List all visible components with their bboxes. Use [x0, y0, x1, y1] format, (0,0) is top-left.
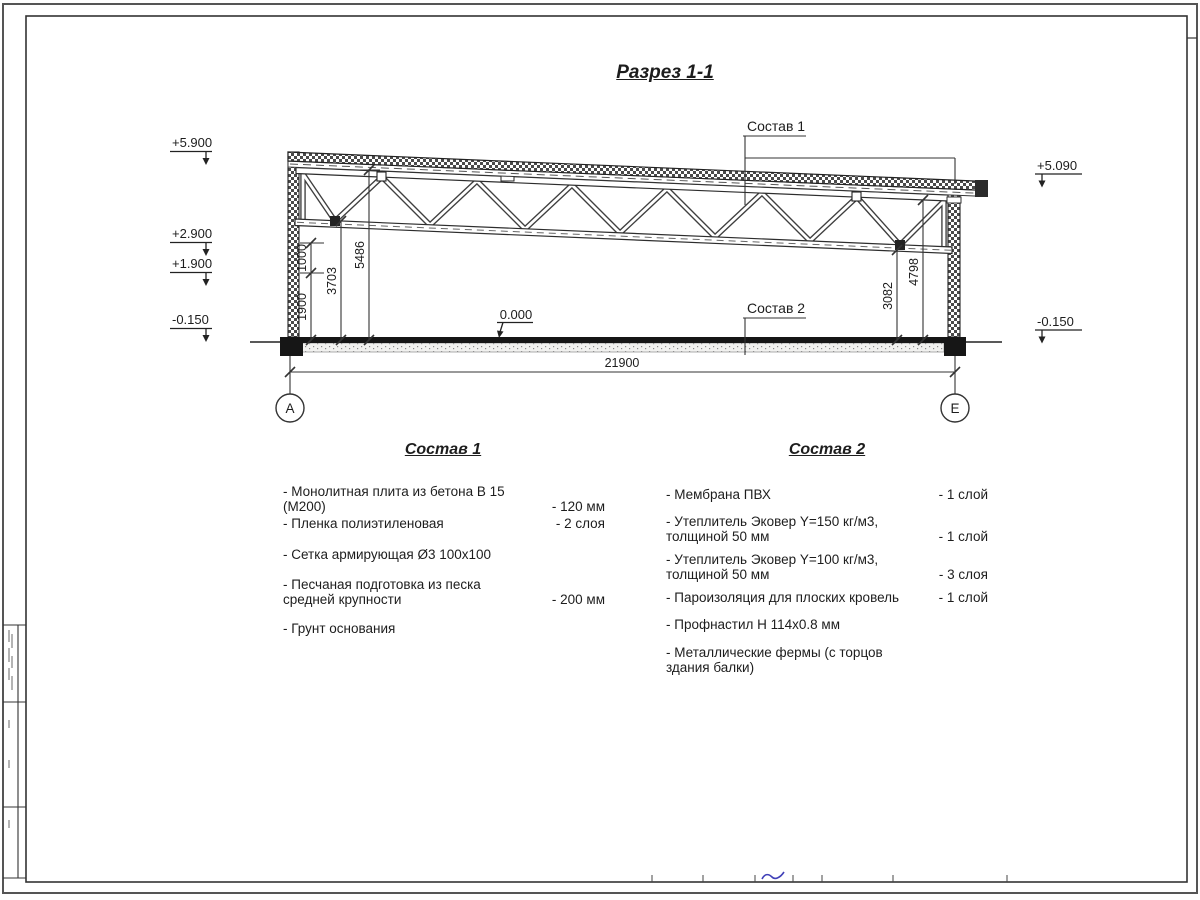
material-text: - Утеплитель Эковер Y=100 кг/м3, толщино…	[666, 552, 878, 582]
elevation-left-mid2: +1.900	[170, 256, 212, 286]
axis-letter-right: Е	[950, 401, 959, 416]
dim-4798: 4798	[907, 258, 921, 286]
composition2-item: - Утеплитель Эковер Y=150 кг/м3, толщино…	[666, 514, 988, 544]
composition1-heading: Состав 1	[283, 441, 603, 459]
material-value: - 1 слой	[931, 487, 988, 502]
left-footing	[280, 337, 303, 356]
material-value: - 200 мм	[544, 592, 605, 607]
roof-edge-cap	[975, 180, 988, 197]
elevation-left-top: +5.900	[170, 135, 212, 165]
elevation-label: +5.900	[172, 135, 212, 150]
material-text: - Монолитная плита из бетона В 15 (М200)	[283, 484, 544, 514]
dim-1900: 1900	[295, 293, 309, 321]
dim-3082: 3082	[881, 282, 895, 310]
right-footing	[944, 337, 966, 356]
elevation-left-mid1: +2.900	[170, 226, 212, 256]
material-value: - 1 слой	[931, 590, 988, 605]
material-text: - Мембрана ПВХ	[666, 487, 771, 502]
material-text: - Грунт основания	[283, 621, 395, 636]
elevation-label: +1.900	[172, 256, 212, 271]
elevation-right-top: +5.090	[1035, 158, 1082, 188]
composition1-item: - Пленка полиэтиленовая - 2 слоя	[283, 516, 605, 531]
elevation-label: +5.090	[1037, 158, 1077, 173]
title-block-ticks	[652, 875, 1007, 882]
material-text: - Профнастил Н 114х0.8 мм	[666, 617, 840, 632]
dim-overall: 21900	[605, 356, 640, 370]
elevation-label: 0.000	[500, 307, 533, 322]
drawing-sheet: +5.900 +2.900 +1.900 -0.150 +5.090 -0.15…	[0, 0, 1200, 900]
material-value: - 2 слоя	[548, 516, 605, 531]
material-value: - 120 мм	[544, 499, 605, 514]
composition2-heading: Состав 2	[666, 441, 988, 459]
elevation-label: -0.150	[172, 312, 209, 327]
composition2-item: - Профнастил Н 114х0.8 мм	[666, 617, 988, 632]
axis-markers: А Е	[276, 394, 969, 422]
elevation-right-bottom: -0.150	[1035, 314, 1082, 344]
dim-3703: 3703	[325, 267, 339, 295]
composition1-item: - Сетка армирующая Ø3 100х100	[283, 547, 605, 562]
overall-dimension: 21900	[285, 356, 960, 394]
elevation-label: -0.150	[1037, 314, 1074, 329]
material-text: - Металлические фермы (с торцов здания б…	[666, 645, 928, 675]
callout-roof-label: Состав 1	[747, 118, 805, 134]
dim-5486: 5486	[353, 241, 367, 269]
composition2-item: - Утеплитель Эковер Y=100 кг/м3, толщино…	[666, 552, 988, 582]
callout-floor-label: Состав 2	[747, 300, 805, 316]
dimension-labels: 1900 1000 3703 5486 3082 4798	[295, 241, 921, 321]
composition2-item: - Металлические фермы (с торцов здания б…	[666, 645, 988, 675]
floor-slab	[288, 337, 960, 343]
elevation-label: +2.900	[172, 226, 212, 241]
composition1-item: - Грунт основания	[283, 621, 605, 636]
composition1-item: - Монолитная плита из бетона В 15 (М200)…	[283, 484, 605, 514]
material-text: - Пленка полиэтиленовая	[283, 516, 444, 531]
material-value: - 1 слой	[931, 529, 988, 544]
material-text: - Утеплитель Эковер Y=150 кг/м3, толщино…	[666, 514, 878, 544]
composition1-item: - Песчаная подготовка из песка средней к…	[283, 577, 605, 607]
margin-micro-text	[9, 630, 12, 828]
composition2-item: - Мембрана ПВХ - 1 слой	[666, 487, 988, 502]
right-wall	[948, 186, 960, 337]
material-text: - Песчаная подготовка из песка средней к…	[283, 577, 481, 607]
dim-1000: 1000	[295, 244, 309, 272]
axis-letter-left: А	[285, 401, 294, 416]
eave-bracket	[947, 197, 961, 203]
left-margin-strip	[3, 625, 26, 878]
elevation-floor-zero: 0.000	[497, 307, 533, 338]
material-text: - Сетка армирующая Ø3 100х100	[283, 547, 491, 562]
material-text: - Пароизоляция для плоских кровель	[666, 590, 899, 605]
sand-bed-layer	[300, 343, 944, 352]
composition2-item: - Пароизоляция для плоских кровель - 1 с…	[666, 590, 988, 605]
material-value: - 3 слоя	[931, 567, 988, 582]
drawing-title: Разрез 1-1	[555, 62, 775, 84]
elevation-left-bottom: -0.150	[170, 312, 212, 342]
blue-signature-mark	[762, 872, 784, 879]
